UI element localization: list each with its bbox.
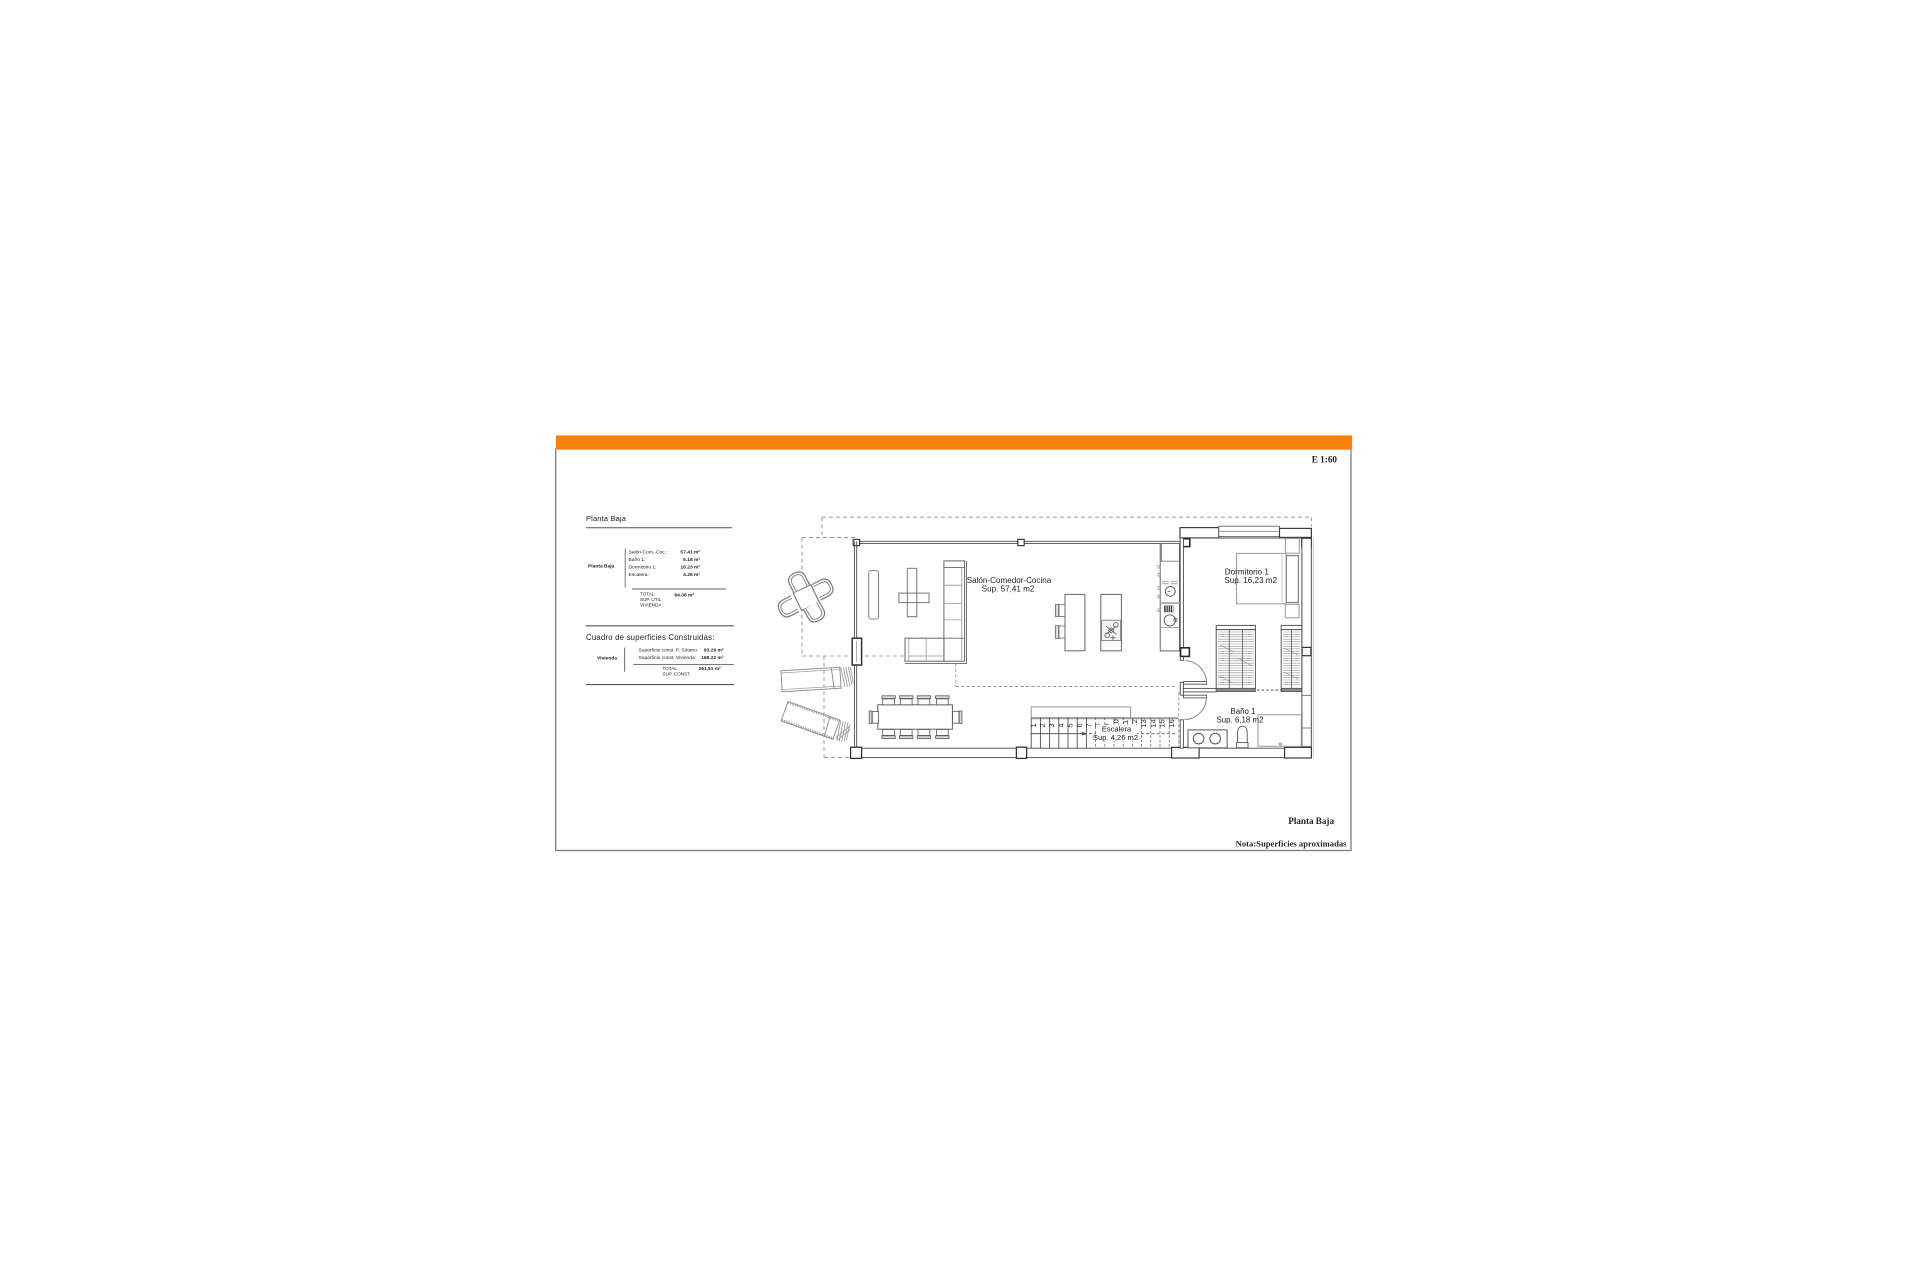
svg-text:Nota:Superficies aproximadas: Nota:Superficies aproximadas [1236,839,1347,849]
svg-text:Superficie const. P. Sótano:: Superficie const. P. Sótano: [639,648,699,654]
svg-text:1: 1 [1029,723,1038,727]
svg-text:57.41 m²: 57.41 m² [680,550,700,556]
svg-text:Sup. 4,26 m2: Sup. 4,26 m2 [1093,733,1138,742]
svg-text:SUP. CONST.: SUP. CONST. [663,671,691,676]
svg-text:168.22 m²: 168.22 m² [701,655,724,661]
svg-text:16.23 m²: 16.23 m² [680,565,700,571]
svg-text:93.29 m²: 93.29 m² [704,648,724,654]
svg-text:Baño 1: Baño 1 [1230,707,1255,716]
svg-text:3: 3 [1047,723,1056,727]
svg-text:Sup. 16,23 m2: Sup. 16,23 m2 [1224,576,1277,585]
svg-text:16: 16 [1167,719,1176,727]
svg-text:Planta Baja: Planta Baja [1288,816,1334,826]
svg-text:13: 13 [1139,719,1148,727]
svg-text:Baño 1:: Baño 1: [629,557,646,563]
svg-text:Sup. 6,18 m2: Sup. 6,18 m2 [1217,716,1264,725]
svg-text:VIVIENDA: VIVIENDA [640,603,662,608]
svg-text:Planta Baja: Planta Baja [586,514,627,523]
svg-text:TOTAL: TOTAL [640,591,655,596]
svg-text:Dormitorio 1:: Dormitorio 1: [629,565,657,571]
svg-text:Salón-Com.-Coc.:: Salón-Com.-Coc.: [629,550,668,556]
svg-text:261.51 m²: 261.51 m² [699,666,722,672]
svg-text:6.18 m²: 6.18 m² [683,557,700,563]
svg-text:14: 14 [1148,719,1157,727]
svg-text:Superficie const. Vivienda:: Superficie const. Vivienda: [639,655,697,661]
svg-text:Cuadro de superficies Construi: Cuadro de superficies Construidas: [586,633,715,642]
svg-text:Sup. 57,41 m2: Sup. 57,41 m2 [982,584,1035,593]
svg-text:SUP. ÚTIL: SUP. ÚTIL [640,596,662,602]
svg-text:15: 15 [1158,719,1167,727]
svg-text:4.26 m²: 4.26 m² [683,572,700,578]
svg-text:Planta Baja: Planta Baja [588,564,615,570]
svg-text:Escalera:: Escalera: [629,572,649,578]
svg-text:6: 6 [1075,723,1084,727]
svg-text:Vivienda: Vivienda [597,656,617,662]
svg-text:5: 5 [1066,723,1075,727]
svg-text:2: 2 [1038,723,1047,727]
svg-text:4: 4 [1056,723,1065,727]
svg-text:84.08 m²: 84.08 m² [674,592,694,598]
svg-text:E 1:60: E 1:60 [1312,455,1338,465]
svg-text:7: 7 [1084,723,1093,727]
svg-text:TOTAL: TOTAL [663,666,678,671]
